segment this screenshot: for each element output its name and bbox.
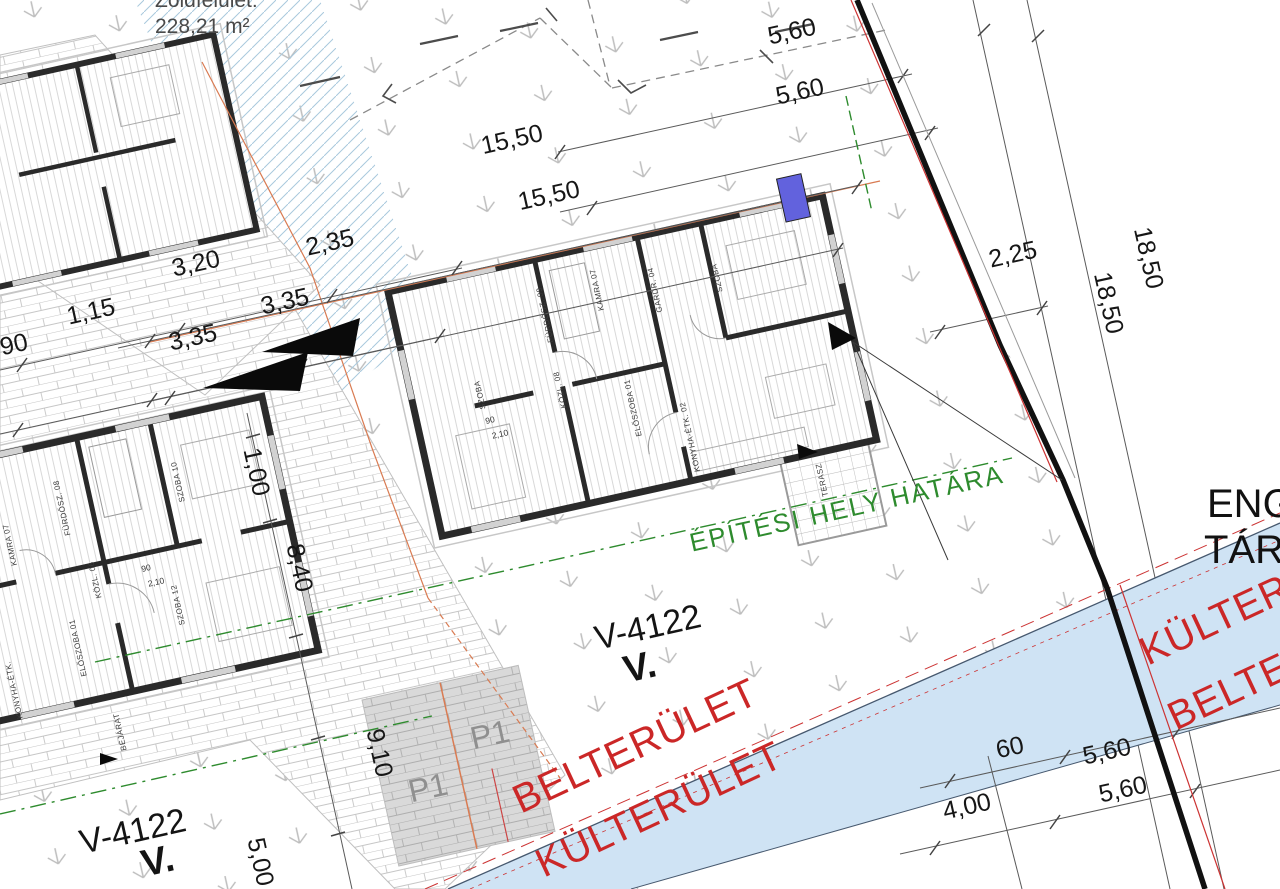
site-plan-page: { "title_block": { "green_area_label": "… (0, 0, 1280, 889)
site-plan-svg (0, 0, 1280, 889)
site-plan: Zöldfelület: 228,21 m² 5,60 5,60 15,50 1… (0, 0, 1280, 889)
